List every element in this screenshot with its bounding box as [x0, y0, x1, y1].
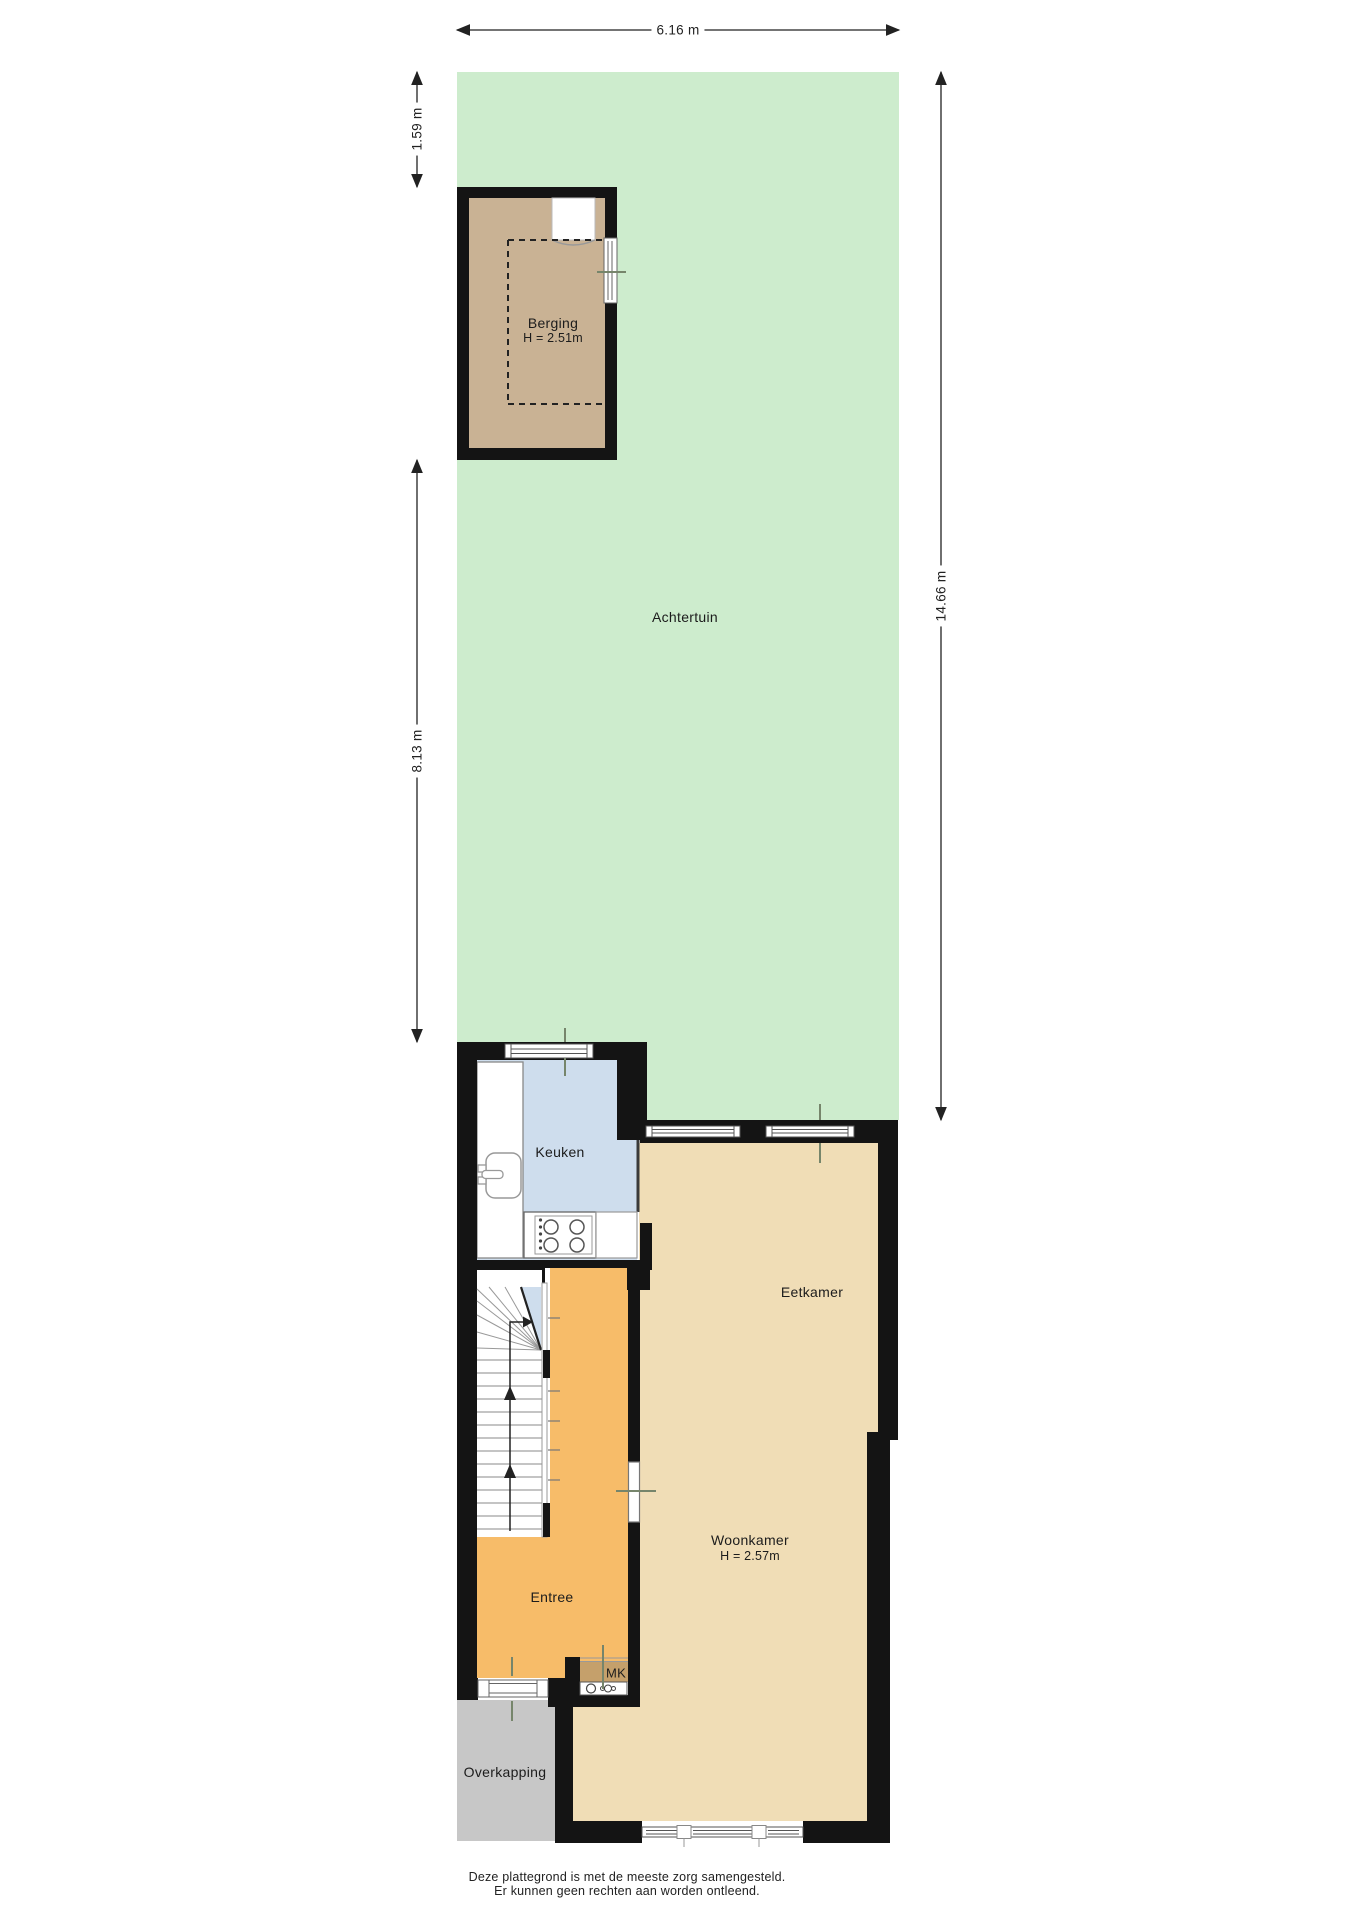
- berging-door: [552, 198, 595, 245]
- floorplan-page: 6.16 m 1.59 m 8.13 m 14.66 m Achtertuin …: [0, 0, 1358, 1920]
- wall-overkapping: [555, 1700, 573, 1843]
- wall-berging-left: [457, 187, 469, 460]
- stairs-head-opening: [477, 1270, 542, 1283]
- disclaimer-line-2: Er kunnen geen rechten aan worden ontlee…: [494, 1884, 760, 1898]
- front-door: [478, 1680, 548, 1697]
- kitchen-window: [505, 1044, 593, 1058]
- wall-pillar-lower: [627, 1260, 650, 1290]
- stairs-balustrade: [542, 1283, 547, 1537]
- room-label-keuken: Keuken: [535, 1144, 584, 1160]
- floorplan-drawing: [0, 0, 1358, 1920]
- room-label-entree: Entree: [530, 1589, 573, 1605]
- wall-hall-lower: [628, 1522, 640, 1707]
- room-height-berging: H = 2.51m: [523, 331, 583, 345]
- stove: [524, 1212, 596, 1258]
- wall-right-upper: [878, 1120, 898, 1440]
- dimension-left-upper: 1.59 m: [410, 102, 425, 155]
- dimension-top-width: 6.16 m: [651, 23, 704, 38]
- woonkamer-floor: [639, 1432, 867, 1821]
- wall-berging-right-lower: [605, 303, 617, 460]
- hall-strip-floor: [550, 1268, 628, 1537]
- room-label-woonkamer: Woonkamer: [711, 1532, 789, 1548]
- room-label-overkapping: Overkapping: [464, 1764, 547, 1780]
- kitchen-counter: [477, 1062, 523, 1258]
- berging-window: [604, 238, 617, 303]
- kitchen-counter-right: [596, 1212, 637, 1258]
- woonkamer-floor-ext: [573, 1707, 640, 1821]
- wall-berging-bottom: [457, 448, 617, 460]
- room-label-mk: MK: [606, 1666, 626, 1681]
- entree-floor: [477, 1537, 628, 1678]
- eetkamer-window-1: [646, 1126, 740, 1137]
- room-height-woonkamer: H = 2.57m: [720, 1549, 780, 1563]
- wall-left: [457, 1042, 477, 1700]
- room-label-achtertuin: Achtertuin: [652, 609, 718, 625]
- wall-berging-top: [457, 187, 617, 198]
- dimension-right-height: 14.66 m: [934, 566, 949, 627]
- room-label-eetkamer: Eetkamer: [781, 1284, 843, 1300]
- wall-bottom-right: [803, 1821, 890, 1843]
- wall-hall-upper: [628, 1290, 640, 1462]
- disclaimer-line-1: Deze plattegrond is met de meeste zorg s…: [469, 1870, 786, 1884]
- eetkamer-window-2: [766, 1126, 854, 1137]
- wall-mk-bottom: [565, 1695, 640, 1707]
- room-label-berging: Berging: [528, 315, 578, 331]
- wall-berging-right-upper: [605, 187, 617, 238]
- wall-bottom-left: [573, 1821, 642, 1843]
- wall-right-lower: [867, 1432, 890, 1843]
- dimension-left-lower: 8.13 m: [410, 724, 425, 777]
- wall-front-left: [457, 1678, 478, 1700]
- living-room-window: [642, 1826, 803, 1848]
